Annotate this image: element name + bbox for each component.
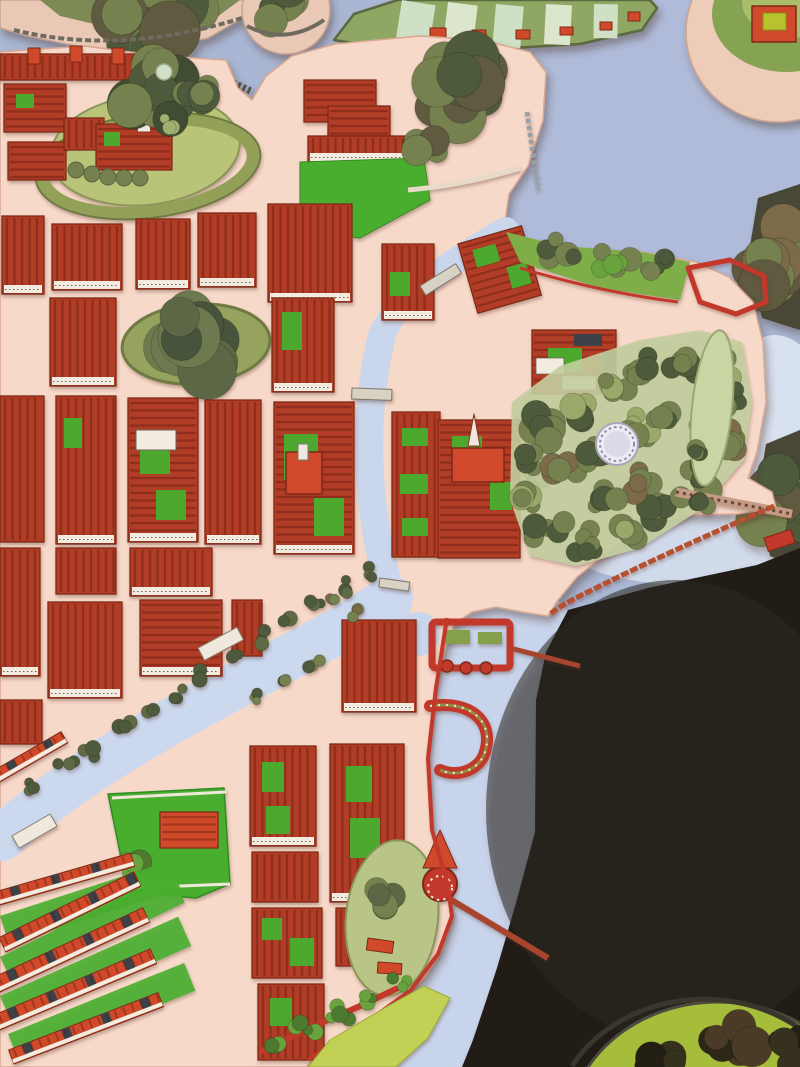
tree-icon (605, 488, 628, 511)
tree-icon (347, 611, 358, 622)
tree-icon (603, 255, 623, 275)
block-base (252, 852, 318, 902)
courtyard-garden (402, 428, 428, 446)
papercraft-map-photo (0, 0, 800, 1067)
tree-icon (650, 406, 673, 429)
city-shape-40 (0, 396, 44, 542)
courtyard-garden (16, 94, 34, 108)
city-shape-17 (84, 166, 100, 182)
tree-icon (253, 697, 261, 705)
tree-icon (368, 884, 390, 906)
city-shape-116 (574, 334, 602, 346)
city-shape-153 (478, 632, 502, 644)
tree-icon (192, 672, 207, 687)
city-shape-36 (50, 298, 116, 386)
tree-icon (547, 458, 571, 482)
tree-icon (303, 661, 315, 673)
tree-icon (258, 624, 271, 637)
tree-icon (691, 493, 709, 511)
tree-icon (160, 297, 200, 337)
tree-icon (341, 587, 353, 599)
city-shape-19 (116, 170, 132, 186)
block-base (272, 298, 334, 392)
east-church (452, 448, 504, 482)
courtyard-garden (390, 272, 410, 296)
north-islands-shape-15 (516, 30, 530, 39)
courtyard-garden (290, 938, 314, 966)
pale-dome (156, 64, 172, 80)
meadow-farm (160, 812, 218, 848)
tree-icon (548, 232, 563, 247)
tree-icon (598, 373, 614, 389)
north-islands-shape-18 (628, 12, 640, 21)
tree-icon (513, 489, 531, 507)
city-shape-22 (328, 106, 390, 136)
tree-icon (178, 684, 188, 694)
courtyard-garden (490, 482, 512, 510)
tree-icon (673, 354, 692, 373)
tree-icon (566, 249, 582, 265)
tree-icon (278, 615, 290, 627)
tree-icon (163, 121, 177, 135)
courtyard-garden (400, 474, 428, 494)
tree-icon (255, 637, 269, 651)
city-shape-156 (480, 662, 492, 674)
city-shape-18 (100, 169, 116, 185)
north-islands-shape-12 (593, 4, 618, 38)
tree-icon (190, 82, 213, 105)
tree-icon (53, 758, 64, 769)
tree-icon (341, 575, 351, 585)
city-shape-30 (52, 224, 122, 290)
city-shape-37 (272, 298, 334, 392)
green-roundel-shape-2 (635, 1041, 687, 1067)
city-shape-4 (28, 48, 40, 64)
tree-icon (398, 982, 409, 993)
tree-icon (63, 758, 75, 770)
city-shape-44 (205, 400, 261, 544)
tree-icon (304, 595, 317, 608)
north-islands-shape-16 (560, 27, 573, 35)
city-shape-8 (8, 142, 66, 180)
tree-icon (367, 572, 377, 582)
tree-icon (264, 1038, 279, 1053)
tree-icon (578, 543, 596, 561)
house-fronts (58, 535, 114, 543)
courtyard-garden (266, 806, 290, 834)
tree-icon (514, 444, 536, 466)
tree-icon (523, 514, 548, 539)
tree-icon (402, 135, 433, 166)
block-base (0, 396, 44, 542)
tree-icon (642, 262, 661, 281)
tree-icon (329, 594, 340, 605)
tree-icon (85, 740, 100, 755)
papercraft-map-scene (0, 0, 800, 1067)
city-shape-142 (604, 431, 630, 457)
city-shape-16 (68, 162, 84, 178)
block-base (48, 602, 122, 698)
block-base (50, 298, 116, 386)
courtyard-garden (262, 762, 284, 792)
city-shape-6 (112, 48, 124, 64)
tree-icon (279, 674, 291, 686)
courtyard-garden (282, 312, 302, 350)
courtyard-garden (262, 918, 282, 940)
tree-icon (332, 1006, 349, 1023)
city-shape-29 (2, 216, 44, 294)
courtyard-garden (314, 498, 344, 536)
tree-icon (553, 511, 575, 533)
city-shape-91 (192, 663, 207, 687)
city-shape-63 (252, 852, 318, 902)
city-shape-26 (402, 126, 450, 166)
tree-icon (292, 1015, 308, 1031)
city-shape-53 (0, 548, 40, 676)
city-shape-59 (0, 700, 42, 744)
tree-icon (437, 52, 482, 97)
tree-icon (226, 651, 239, 664)
courtyard-garden (104, 132, 120, 146)
city-shape-32 (198, 213, 256, 287)
tree-icon (28, 782, 40, 794)
canal-bridge (352, 388, 392, 400)
courtyard-garden (64, 418, 82, 448)
north-islands-shape-23 (763, 13, 786, 30)
city-shape-155 (460, 662, 472, 674)
north-islands-shape-17 (600, 22, 612, 30)
city-shape-47 (298, 444, 308, 460)
city-shape-20 (132, 170, 148, 186)
city-shape-5 (70, 46, 82, 62)
city-shape-48 (392, 412, 440, 557)
city-shape-61 (250, 746, 316, 846)
city-shape-60 (342, 620, 416, 712)
tree-icon (560, 393, 586, 419)
block-base (4, 84, 66, 132)
city-shape-70 (377, 962, 402, 975)
city-shape-55 (130, 548, 212, 596)
tree-icon (636, 357, 659, 380)
white-palace (136, 430, 176, 450)
city-shape-154 (441, 660, 453, 672)
tree-icon (119, 720, 132, 733)
city-shape-57 (140, 600, 222, 676)
north-islands-shape-11 (544, 4, 572, 45)
tree-icon (732, 1026, 773, 1067)
tree-icon (660, 251, 673, 264)
tree-icon (770, 1028, 799, 1057)
tree-icon (688, 445, 702, 459)
tree-icon (387, 972, 399, 984)
tree-icon (616, 520, 635, 539)
courtyard-garden (346, 766, 372, 802)
city-shape-56 (48, 602, 122, 698)
city-shape-42 (128, 398, 198, 542)
tree-icon (314, 655, 326, 667)
block-base (342, 620, 416, 712)
tree-icon (359, 990, 371, 1002)
tree-icon (147, 703, 160, 716)
city-shape-152 (444, 630, 470, 644)
city-shape-31 (136, 219, 190, 289)
city-shape-33 (268, 204, 352, 302)
tree-icon (629, 474, 647, 492)
city-shape-54 (56, 548, 116, 594)
city-shape-64 (252, 908, 322, 978)
city-shape-7 (4, 84, 66, 132)
north-islands-shape-10 (492, 4, 524, 48)
courtyard-garden (270, 998, 292, 1026)
courtyard-garden (402, 518, 428, 536)
tree-icon (169, 693, 180, 704)
tree-icon (108, 83, 153, 128)
city-shape-41 (56, 396, 116, 544)
house-fronts (384, 311, 432, 319)
courtyard-garden (156, 490, 186, 520)
